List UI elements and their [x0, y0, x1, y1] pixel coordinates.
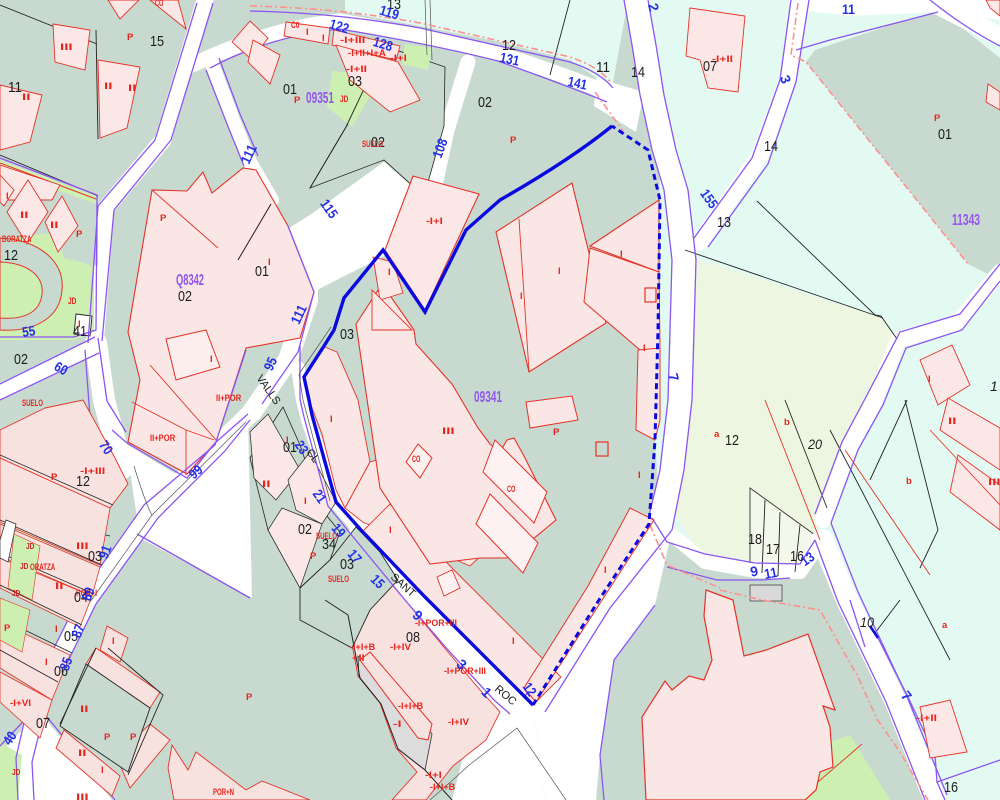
- svg-text:13: 13: [717, 214, 731, 231]
- svg-text:10: 10: [860, 614, 874, 630]
- svg-text:I: I: [45, 657, 48, 668]
- svg-text:11: 11: [8, 79, 22, 96]
- svg-text:P: P: [76, 229, 83, 240]
- svg-text:JD: JD: [12, 768, 21, 777]
- svg-text:III: III: [60, 42, 73, 53]
- svg-text:-I+I+B: -I+I+B: [398, 701, 423, 712]
- svg-text:-I+II: -I+II: [712, 54, 733, 65]
- svg-text:JD: JD: [12, 589, 21, 598]
- svg-text:01: 01: [255, 263, 269, 280]
- svg-text:-I+IV: -I+IV: [448, 717, 470, 728]
- svg-text:-I+IV: -I+IV: [390, 642, 412, 653]
- svg-text:09341: 09341: [474, 389, 502, 406]
- svg-text:P: P: [510, 135, 517, 146]
- svg-text:JD: JD: [340, 94, 348, 105]
- svg-text:P: P: [4, 623, 11, 634]
- svg-text:02: 02: [178, 288, 192, 305]
- svg-text:P: P: [104, 732, 111, 743]
- svg-text:I: I: [928, 374, 931, 385]
- svg-text:I: I: [286, 435, 289, 446]
- svg-text:SUELO: SUELO: [328, 574, 349, 585]
- svg-text:JD: JD: [26, 542, 35, 551]
- svg-text:16: 16: [944, 779, 958, 796]
- svg-text:11: 11: [596, 59, 610, 76]
- svg-text:01: 01: [938, 126, 952, 143]
- svg-text:-I+VI: -I+VI: [10, 698, 31, 709]
- svg-text:III: III: [76, 792, 89, 800]
- svg-text:I: I: [604, 565, 607, 576]
- svg-text:II: II: [262, 479, 270, 490]
- svg-text:P: P: [160, 213, 167, 224]
- svg-text:12: 12: [4, 247, 18, 264]
- svg-text:P: P: [51, 472, 58, 483]
- svg-text:Q8342: Q8342: [176, 272, 204, 289]
- svg-text:I: I: [558, 266, 561, 277]
- svg-text:11343: 11343: [952, 212, 980, 229]
- svg-text:-I+POR+III: -I+POR+III: [444, 666, 486, 677]
- svg-text:P: P: [294, 95, 301, 106]
- svg-text:b: b: [784, 417, 790, 428]
- svg-text:I: I: [6, 191, 9, 202]
- svg-text:II: II: [80, 704, 88, 715]
- svg-text:CO: CO: [412, 454, 420, 465]
- svg-text:C0: C0: [291, 20, 299, 31]
- svg-text:-I: -I: [393, 719, 401, 730]
- svg-text:II: II: [22, 92, 30, 103]
- svg-text:II: II: [20, 210, 28, 221]
- svg-text:P: P: [310, 551, 317, 562]
- svg-text:I: I: [322, 33, 325, 44]
- svg-text:I: I: [210, 354, 213, 365]
- svg-text:-I+I: -I+I: [425, 770, 442, 781]
- svg-text:BORATZA: BORATZA: [2, 234, 31, 245]
- svg-text:02: 02: [14, 351, 28, 368]
- svg-text:P: P: [127, 32, 134, 43]
- svg-text:09351: 09351: [306, 90, 334, 107]
- svg-text:-I+I: -I+I: [390, 53, 407, 64]
- svg-text:I: I: [389, 525, 392, 536]
- svg-text:b: b: [906, 476, 912, 487]
- svg-text:P: P: [934, 113, 941, 124]
- svg-text:14: 14: [631, 64, 645, 81]
- svg-text:07: 07: [36, 715, 50, 732]
- svg-text:I: I: [512, 636, 515, 647]
- svg-text:11: 11: [842, 1, 855, 17]
- svg-text:-I+POR+III: -I+POR+III: [415, 618, 457, 629]
- svg-text:P: P: [553, 427, 560, 438]
- svg-text:JD: JD: [20, 562, 29, 571]
- svg-text:a: a: [714, 429, 720, 440]
- svg-text:I: I: [55, 624, 58, 635]
- svg-text:I: I: [638, 470, 641, 481]
- svg-text:20: 20: [807, 436, 822, 452]
- svg-text:I: I: [101, 765, 104, 776]
- svg-text:II: II: [948, 416, 956, 427]
- svg-text:12: 12: [76, 473, 90, 490]
- svg-text:CO: CO: [155, 0, 163, 9]
- svg-text:III: III: [442, 426, 455, 437]
- svg-text:II: II: [104, 81, 112, 92]
- svg-text:I: I: [388, 267, 391, 278]
- svg-text:-I+I+B: -I+I+B: [350, 642, 375, 653]
- svg-text:02: 02: [298, 521, 312, 538]
- svg-text:ORATZA: ORATZA: [30, 562, 55, 573]
- svg-text:02: 02: [478, 94, 492, 111]
- svg-text:I: I: [330, 414, 333, 425]
- svg-text:+II: +II: [352, 653, 365, 664]
- svg-text:I: I: [520, 291, 523, 302]
- svg-text:II: II: [55, 581, 63, 592]
- svg-text:I: I: [306, 27, 309, 38]
- svg-text:P: P: [130, 732, 137, 743]
- svg-text:SUELO: SUELO: [22, 398, 43, 409]
- svg-text:-I+I: -I+I: [426, 216, 443, 227]
- svg-text:P: P: [246, 692, 253, 703]
- svg-text:-I+II: -I+II: [916, 713, 937, 724]
- svg-text:I: I: [78, 319, 81, 330]
- svg-text:18: 18: [748, 531, 762, 548]
- svg-text:-I+I+B: -I+I+B: [430, 782, 455, 793]
- svg-text:III: III: [76, 541, 89, 552]
- svg-text:II: II: [50, 220, 58, 231]
- svg-text:I: I: [620, 249, 623, 260]
- svg-text:14: 14: [764, 138, 778, 155]
- svg-text:1: 1: [990, 378, 998, 394]
- svg-text:17: 17: [766, 541, 780, 558]
- svg-text:I: I: [268, 257, 271, 268]
- svg-text:12: 12: [725, 432, 739, 449]
- svg-text:a: a: [942, 620, 948, 631]
- svg-text:34: 34: [322, 536, 336, 553]
- svg-text:I: I: [304, 496, 307, 507]
- svg-text:II: II: [78, 748, 86, 759]
- svg-text:03: 03: [348, 73, 362, 90]
- svg-text:I: I: [643, 343, 646, 354]
- svg-text:II+POR: II+POR: [150, 433, 175, 444]
- svg-text:III: III: [988, 477, 1000, 488]
- svg-text:SUELO: SUELO: [362, 139, 383, 150]
- svg-text:II+POR: II+POR: [216, 393, 241, 404]
- svg-text:CO: CO: [507, 484, 515, 495]
- svg-text:-I+III: -I+III: [340, 35, 365, 46]
- svg-text:JD: JD: [68, 296, 76, 307]
- svg-text:03: 03: [340, 326, 354, 343]
- svg-text:I: I: [112, 636, 115, 647]
- svg-text:55: 55: [21, 322, 36, 340]
- svg-text:POR+N: POR+N: [213, 787, 234, 798]
- svg-text:II: II: [128, 83, 136, 94]
- svg-text:15: 15: [150, 33, 164, 50]
- svg-text:-I+II: -I+II: [346, 64, 367, 75]
